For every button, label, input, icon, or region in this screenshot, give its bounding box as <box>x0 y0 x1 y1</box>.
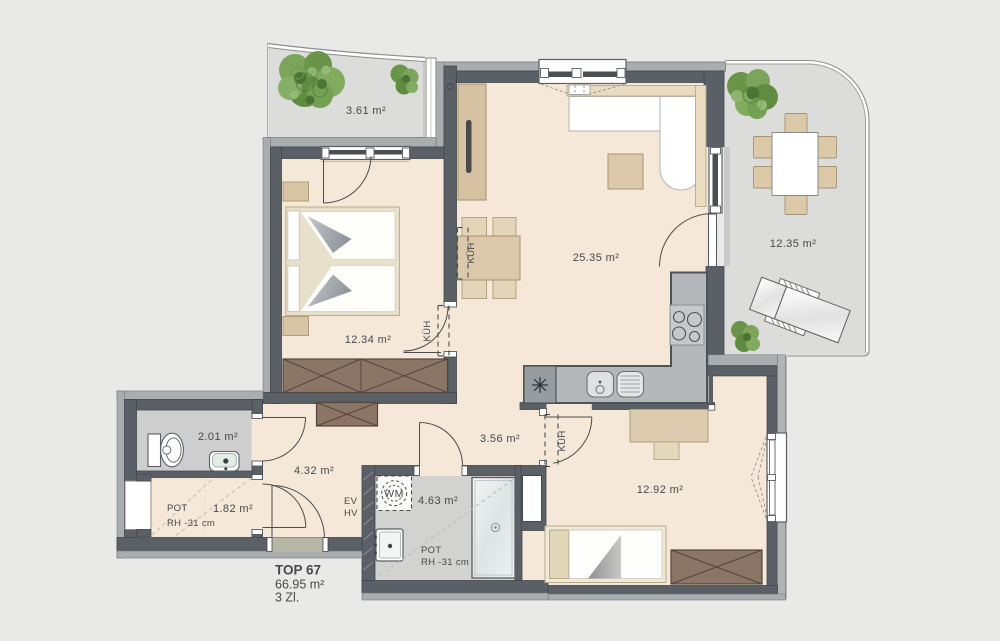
svg-text:WM: WM <box>384 488 404 500</box>
svg-text:1.82 m²: 1.82 m² <box>213 503 253 515</box>
svg-text:3 Zl.: 3 Zl. <box>275 591 299 605</box>
svg-text:EV: EV <box>344 496 358 507</box>
svg-text:2.01 m²: 2.01 m² <box>198 431 238 443</box>
svg-text:3.56 m²: 3.56 m² <box>480 433 520 445</box>
svg-text:12.35 m²: 12.35 m² <box>770 238 817 250</box>
svg-text:POT: POT <box>421 545 441 556</box>
svg-text:KÜH: KÜH <box>466 243 477 264</box>
svg-text:4.32 m²: 4.32 m² <box>294 465 334 477</box>
svg-text:RH -31 cm: RH -31 cm <box>167 518 215 529</box>
svg-text:12.92 m²: 12.92 m² <box>637 484 684 496</box>
svg-text:POT: POT <box>167 503 187 514</box>
svg-text:4.63 m²: 4.63 m² <box>418 495 458 507</box>
svg-text:25.35 m²: 25.35 m² <box>573 252 620 264</box>
svg-text:HV: HV <box>344 508 358 519</box>
svg-text:12.34 m²: 12.34 m² <box>345 334 392 346</box>
svg-text:KÜH: KÜH <box>422 321 433 342</box>
svg-text:KÜH: KÜH <box>557 431 568 452</box>
svg-text:3.61 m²: 3.61 m² <box>346 105 386 117</box>
svg-text:66.95 m²: 66.95 m² <box>275 578 324 592</box>
svg-text:RH -31 cm: RH -31 cm <box>421 557 469 568</box>
svg-text:TOP 67: TOP 67 <box>275 563 321 578</box>
